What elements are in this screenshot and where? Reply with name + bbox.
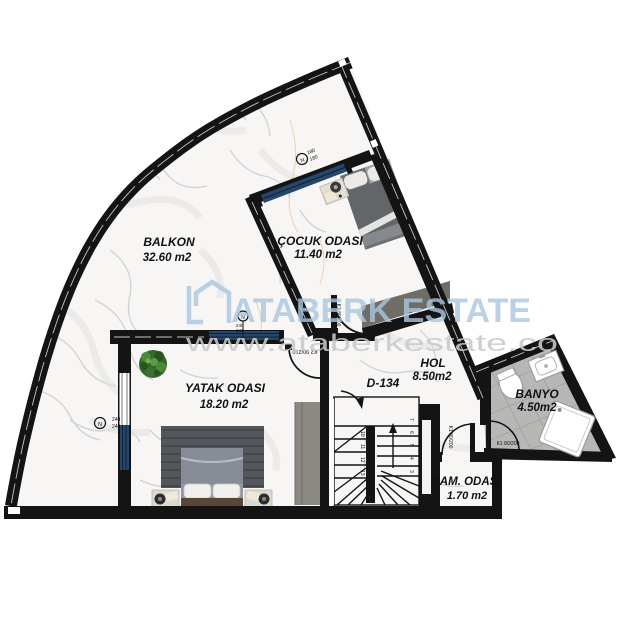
svg-text:ÇAM. ODASI: ÇAM. ODASI (432, 476, 502, 488)
svg-text:YATAK ODASI: YATAK ODASI (185, 381, 266, 395)
svg-text:18.20 m2: 18.20 m2 (200, 399, 249, 411)
svg-text:D-134: D-134 (367, 376, 400, 390)
svg-text:ATABERK ESTATE: ATABERK ESTATE (231, 292, 531, 330)
svg-text:4: 4 (408, 457, 414, 460)
svg-text:N: N (98, 422, 102, 428)
svg-text:8.50m2: 8.50m2 (412, 371, 452, 383)
svg-text:3: 3 (408, 470, 414, 473)
svg-text:240: 240 (112, 424, 121, 430)
svg-text:HOL: HOL (420, 356, 445, 370)
svg-text:1.70 m2: 1.70 m2 (447, 490, 487, 502)
svg-text:32.60 m2: 32.60 m2 (143, 252, 192, 264)
svg-text:K1 80/200: K1 80/200 (497, 441, 520, 447)
svg-text:6: 6 (408, 431, 414, 434)
svg-text:10: 10 (359, 431, 365, 437)
svg-text:4.50m2: 4.50m2 (516, 402, 557, 414)
svg-text:BANYO: BANYO (515, 387, 559, 401)
svg-text:ÇOCUK ODASI: ÇOCUK ODASI (277, 234, 363, 248)
svg-text:240: 240 (112, 417, 121, 423)
svg-text:K1 80/200: K1 80/200 (447, 426, 453, 449)
svg-text:5: 5 (408, 444, 414, 447)
svg-text:11.40 m2: 11.40 m2 (294, 249, 342, 261)
svg-text:7: 7 (408, 418, 414, 421)
svg-text:11: 11 (359, 444, 365, 449)
svg-text:BALKON: BALKON (143, 235, 195, 249)
svg-text:www.ataberkestate.co: www.ataberkestate.co (184, 330, 558, 357)
svg-text:13: 13 (359, 470, 365, 476)
svg-text:12: 12 (359, 457, 365, 463)
